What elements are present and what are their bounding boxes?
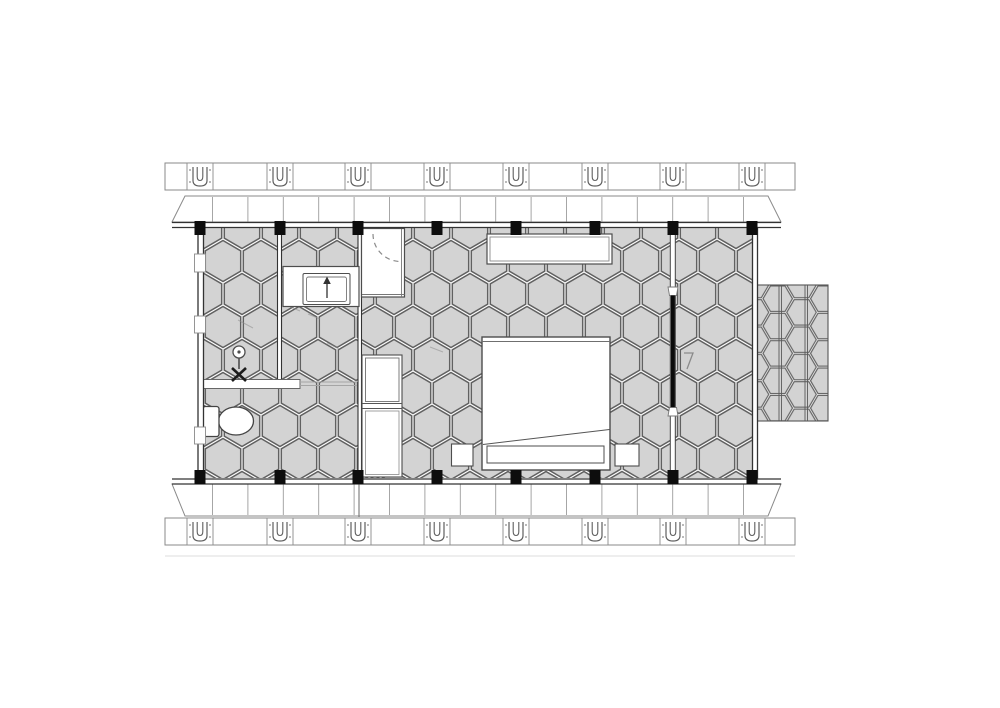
wardrobe	[487, 234, 612, 264]
post	[668, 470, 679, 484]
post-anchor-bracket	[739, 518, 765, 545]
wall-connector	[195, 254, 206, 272]
bottom-eave-band	[172, 484, 781, 516]
shower-cabin	[362, 229, 405, 298]
post	[275, 221, 286, 235]
post-anchor-bracket	[739, 163, 765, 190]
wall-connector	[195, 427, 206, 444]
post	[668, 221, 679, 235]
nightstand-right	[615, 444, 639, 466]
post	[353, 470, 364, 484]
post	[511, 221, 522, 235]
floor-plan-drawing	[0, 0, 1000, 708]
top-anchor-strip	[165, 163, 795, 190]
double-bed	[482, 337, 610, 470]
post-anchor-bracket	[660, 163, 686, 190]
door-track-stop-top	[668, 287, 678, 296]
post-anchor-bracket	[187, 518, 213, 545]
nightstand-left	[452, 444, 474, 466]
post	[195, 470, 206, 484]
post-anchor-bracket	[345, 518, 371, 545]
top-wall	[172, 223, 781, 228]
post-anchor-bracket	[187, 163, 213, 190]
post-anchor-bracket	[424, 518, 450, 545]
post-anchor-bracket	[503, 163, 529, 190]
bottom-wall	[172, 479, 781, 484]
left-wall	[195, 223, 206, 485]
post-anchor-bracket	[503, 518, 529, 545]
post	[195, 221, 206, 235]
pillow-strip	[487, 446, 604, 463]
post	[511, 470, 522, 484]
top-eave-band	[172, 196, 781, 222]
post-anchor-bracket	[424, 163, 450, 190]
bottom-anchor-strip	[165, 518, 795, 545]
post-anchor-bracket	[345, 163, 371, 190]
post	[590, 221, 601, 235]
post-anchor-bracket	[660, 518, 686, 545]
post-anchor-bracket	[582, 163, 608, 190]
post	[275, 470, 286, 484]
vanity-counter	[283, 267, 359, 307]
post	[747, 470, 758, 484]
toilet	[203, 407, 254, 437]
door-panel	[671, 296, 675, 408]
post	[353, 221, 364, 235]
post-anchor-bracket	[582, 518, 608, 545]
floor-plan-page	[0, 0, 1000, 708]
door-track-stop-bottom	[668, 408, 678, 417]
post-anchor-bracket	[267, 163, 293, 190]
tall-cabinet	[362, 355, 402, 477]
post	[590, 470, 601, 484]
bathroom-partition-wall	[278, 228, 282, 384]
post	[432, 221, 443, 235]
side-deck	[754, 285, 828, 421]
post-anchor-bracket	[267, 518, 293, 545]
right-wall	[753, 223, 758, 485]
post	[432, 470, 443, 484]
wall-connector	[195, 316, 206, 333]
post	[747, 221, 758, 235]
